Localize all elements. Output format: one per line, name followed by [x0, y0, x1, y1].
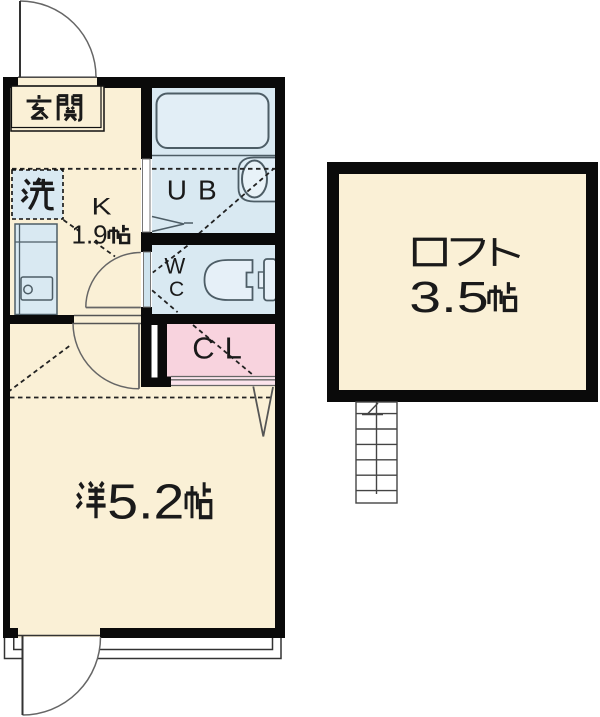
- svg-text:3.5: 3.5: [409, 272, 488, 321]
- svg-text:CL: CL: [192, 331, 252, 366]
- svg-text:1.9: 1.9: [72, 220, 108, 250]
- svg-text:UB: UB: [167, 175, 228, 206]
- svg-text:W: W: [165, 254, 186, 279]
- svg-text:C: C: [169, 278, 184, 301]
- svg-text:5.2: 5.2: [107, 475, 184, 529]
- svg-text:K: K: [92, 192, 112, 219]
